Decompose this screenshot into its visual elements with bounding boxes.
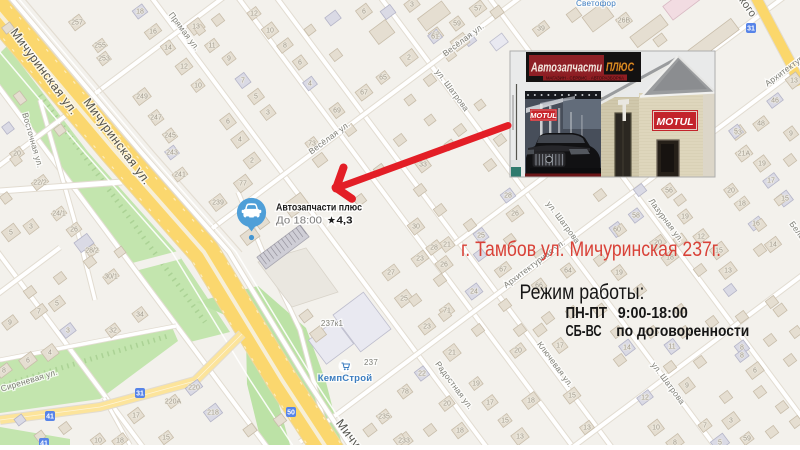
svg-text:48: 48 <box>757 121 765 128</box>
svg-text:14: 14 <box>164 45 172 52</box>
svg-text:32: 32 <box>109 328 117 335</box>
svg-text:4,3: 4,3 <box>337 215 353 227</box>
svg-text:13: 13 <box>516 434 524 441</box>
svg-text:58: 58 <box>632 213 640 220</box>
svg-text:59: 59 <box>743 436 751 443</box>
svg-text:30: 30 <box>412 224 420 231</box>
svg-text:СБ-ВС: СБ-ВС <box>566 323 602 340</box>
svg-text:11: 11 <box>208 43 215 50</box>
svg-text:18: 18 <box>136 9 144 16</box>
svg-text:245: 245 <box>164 133 176 140</box>
svg-text:5: 5 <box>718 440 722 446</box>
svg-text:8: 8 <box>740 345 744 352</box>
svg-text:9:00-18:00: 9:00-18:00 <box>618 305 688 322</box>
svg-text:11: 11 <box>668 344 675 351</box>
svg-text:6: 6 <box>362 9 366 16</box>
svg-text:3: 3 <box>66 328 70 335</box>
svg-text:МАГАЗИН · СЕРВИС · АВТОРАЗБОРК: МАГАЗИН · СЕРВИС · АВТОРАЗБОРКА <box>546 75 625 80</box>
svg-text:5: 5 <box>9 230 13 237</box>
svg-text:ПЛЮС: ПЛЮС <box>606 62 635 74</box>
svg-text:г. Тамбов ул. Мичуринская 237г: г. Тамбов ул. Мичуринская 237г. <box>461 238 721 261</box>
svg-text:241: 241 <box>174 172 186 179</box>
svg-text:19: 19 <box>615 270 623 277</box>
svg-text:10: 10 <box>194 83 202 90</box>
svg-text:57: 57 <box>474 6 482 13</box>
svg-text:MOTUL: MOTUL <box>530 111 557 120</box>
svg-text:17: 17 <box>486 400 494 407</box>
svg-text:77: 77 <box>239 181 247 188</box>
svg-text:5: 5 <box>254 94 258 101</box>
svg-text:20: 20 <box>443 401 451 408</box>
svg-text:18: 18 <box>738 201 746 208</box>
svg-text:21: 21 <box>443 242 451 249</box>
svg-text:22: 22 <box>418 371 426 378</box>
svg-text:26: 26 <box>440 262 448 269</box>
svg-text:6: 6 <box>226 119 230 126</box>
svg-text:5: 5 <box>734 129 738 136</box>
svg-text:5: 5 <box>55 301 59 308</box>
svg-text:7: 7 <box>37 309 41 316</box>
svg-text:9: 9 <box>685 383 689 390</box>
svg-text:39: 39 <box>537 26 545 33</box>
svg-text:19: 19 <box>758 161 766 168</box>
svg-text:17: 17 <box>556 343 564 350</box>
svg-text:18: 18 <box>527 398 535 405</box>
svg-text:253: 253 <box>98 56 110 63</box>
svg-text:233: 233 <box>398 438 410 445</box>
svg-text:56: 56 <box>665 188 673 195</box>
svg-text:237: 237 <box>364 358 378 367</box>
svg-text:23: 23 <box>416 256 424 263</box>
svg-text:8: 8 <box>283 43 287 50</box>
svg-text:69: 69 <box>333 108 341 115</box>
svg-text:9: 9 <box>227 56 231 63</box>
svg-text:16: 16 <box>149 29 157 36</box>
svg-text:220: 220 <box>188 385 200 392</box>
svg-text:15: 15 <box>501 418 509 425</box>
svg-text:41: 41 <box>46 413 54 420</box>
svg-text:6: 6 <box>298 60 302 67</box>
svg-text:73: 73 <box>308 141 316 148</box>
svg-text:31: 31 <box>136 390 144 397</box>
svg-text:Светофор: Светофор <box>576 0 616 8</box>
svg-text:20: 20 <box>514 348 522 355</box>
svg-text:12: 12 <box>250 11 258 18</box>
svg-text:61: 61 <box>431 34 439 41</box>
svg-text:8: 8 <box>673 440 677 446</box>
svg-text:65: 65 <box>379 75 387 82</box>
svg-text:13: 13 <box>724 268 732 275</box>
svg-text:28/2: 28/2 <box>85 248 99 255</box>
svg-text:67: 67 <box>499 267 507 274</box>
svg-text:46: 46 <box>771 98 779 105</box>
svg-text:257: 257 <box>71 20 83 27</box>
svg-text:4: 4 <box>48 350 52 357</box>
svg-text:13: 13 <box>192 24 200 31</box>
svg-text:18: 18 <box>456 428 464 435</box>
svg-text:21: 21 <box>448 350 456 357</box>
svg-text:30/1: 30/1 <box>104 274 118 281</box>
svg-text:67: 67 <box>360 90 368 97</box>
svg-text:14: 14 <box>623 345 631 352</box>
svg-text:17: 17 <box>767 178 775 185</box>
svg-text:20: 20 <box>727 188 735 195</box>
svg-text:3: 3 <box>410 2 414 9</box>
svg-text:6: 6 <box>26 358 30 365</box>
svg-text:33: 33 <box>419 162 427 169</box>
svg-text:12: 12 <box>180 64 188 71</box>
svg-text:7: 7 <box>241 78 245 85</box>
svg-text:59: 59 <box>453 21 461 28</box>
svg-text:10: 10 <box>652 425 660 432</box>
svg-text:Автозапчасти: Автозапчасти <box>530 60 602 75</box>
svg-text:255: 255 <box>94 43 106 50</box>
svg-text:50: 50 <box>287 409 295 416</box>
svg-text:24/1: 24/1 <box>52 211 66 218</box>
svg-text:26: 26 <box>511 211 519 218</box>
svg-text:64: 64 <box>564 268 572 275</box>
svg-text:25: 25 <box>400 296 408 303</box>
svg-text:71: 71 <box>443 308 451 315</box>
svg-text:9: 9 <box>789 131 793 138</box>
svg-text:41: 41 <box>40 440 48 445</box>
svg-text:13: 13 <box>583 425 591 432</box>
svg-text:4: 4 <box>238 137 242 144</box>
svg-text:22/2: 22/2 <box>33 180 47 187</box>
svg-text:8: 8 <box>2 368 6 375</box>
svg-text:20: 20 <box>13 151 21 158</box>
svg-text:15: 15 <box>162 435 170 442</box>
svg-text:237к1: 237к1 <box>321 319 344 328</box>
svg-text:4: 4 <box>308 81 312 88</box>
svg-text:27: 27 <box>387 270 395 277</box>
svg-text:MOTUL: MOTUL <box>657 116 694 128</box>
svg-text:239: 239 <box>212 200 224 207</box>
svg-text:78: 78 <box>401 389 409 396</box>
svg-text:ПН-ПТ: ПН-ПТ <box>566 305 608 322</box>
svg-text:220А: 220А <box>165 399 182 406</box>
svg-text:по договоренности: по договоренности <box>616 323 749 340</box>
svg-text:235: 235 <box>378 414 390 421</box>
svg-text:218: 218 <box>207 410 219 417</box>
svg-text:3: 3 <box>29 224 33 231</box>
svg-text:6: 6 <box>753 368 757 375</box>
svg-text:КемпСтрой: КемпСтрой <box>318 373 372 384</box>
svg-text:17: 17 <box>132 413 140 420</box>
svg-text:243: 243 <box>166 150 178 157</box>
svg-text:19: 19 <box>472 381 480 388</box>
svg-text:Режим работы:: Режим работы: <box>520 281 645 304</box>
svg-text:10: 10 <box>266 28 274 35</box>
svg-text:247: 247 <box>150 115 162 122</box>
svg-text:26В: 26В <box>618 18 631 25</box>
svg-text:Автозапчасти плюс: Автозапчасти плюс <box>276 203 362 214</box>
svg-text:15: 15 <box>781 196 789 203</box>
svg-text:2: 2 <box>250 158 254 165</box>
svg-text:★: ★ <box>327 216 336 227</box>
svg-text:7: 7 <box>703 423 707 430</box>
svg-text:28: 28 <box>430 245 438 252</box>
svg-text:13: 13 <box>790 78 798 85</box>
svg-text:8: 8 <box>740 353 744 360</box>
svg-text:12: 12 <box>641 395 649 402</box>
svg-text:19: 19 <box>681 214 689 221</box>
svg-text:249: 249 <box>136 94 148 101</box>
svg-text:15: 15 <box>568 393 576 400</box>
svg-text:26: 26 <box>70 227 78 234</box>
svg-text:До 18:00: До 18:00 <box>276 215 322 227</box>
svg-text:3: 3 <box>729 418 733 425</box>
svg-text:18: 18 <box>116 438 124 445</box>
svg-text:23: 23 <box>423 324 431 331</box>
svg-text:24: 24 <box>470 289 478 296</box>
svg-text:28: 28 <box>504 193 512 200</box>
svg-text:10: 10 <box>94 438 102 445</box>
svg-text:31: 31 <box>747 25 755 32</box>
svg-text:34: 34 <box>136 312 144 319</box>
svg-text:2: 2 <box>407 55 411 62</box>
svg-text:16: 16 <box>752 221 760 228</box>
svg-text:21А: 21А <box>738 151 751 158</box>
svg-text:60: 60 <box>613 227 621 234</box>
svg-text:14: 14 <box>769 242 777 249</box>
svg-text:3: 3 <box>266 110 270 117</box>
svg-text:9: 9 <box>8 320 12 327</box>
